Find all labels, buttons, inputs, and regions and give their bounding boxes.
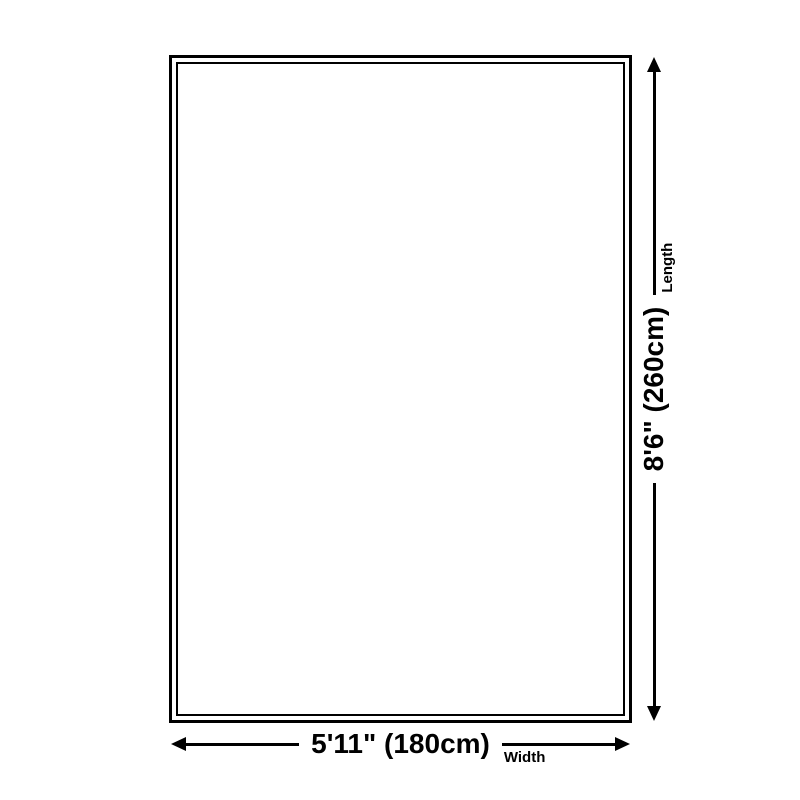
length-value: 8'6" (260cm) [640, 295, 668, 484]
up-arrowhead-icon [647, 57, 661, 72]
width-dimension-line-end-stroke [502, 743, 615, 746]
item-outline-inner [176, 62, 625, 716]
width-dimension-line-start [186, 743, 299, 746]
length-dimension-line-end: Length [632, 72, 676, 295]
length-dimension-line-start [653, 483, 656, 706]
right-arrowhead-icon [615, 737, 630, 751]
length-dimension-arrow: 8'6" (260cm) Length [632, 57, 676, 721]
width-dimension-line-end: Width [502, 722, 615, 766]
length-label: Length [660, 243, 675, 293]
size-diagram: 5'11" (180cm) Width 8'6" (260cm) Length [0, 0, 800, 800]
length-dimension-line-end-stroke [653, 72, 656, 295]
down-arrowhead-icon [647, 706, 661, 721]
item-outline [169, 55, 632, 723]
width-label: Width [504, 750, 546, 765]
left-arrowhead-icon [171, 737, 186, 751]
width-dimension-arrow: 5'11" (180cm) Width [171, 722, 630, 766]
width-value: 5'11" (180cm) [299, 730, 502, 758]
